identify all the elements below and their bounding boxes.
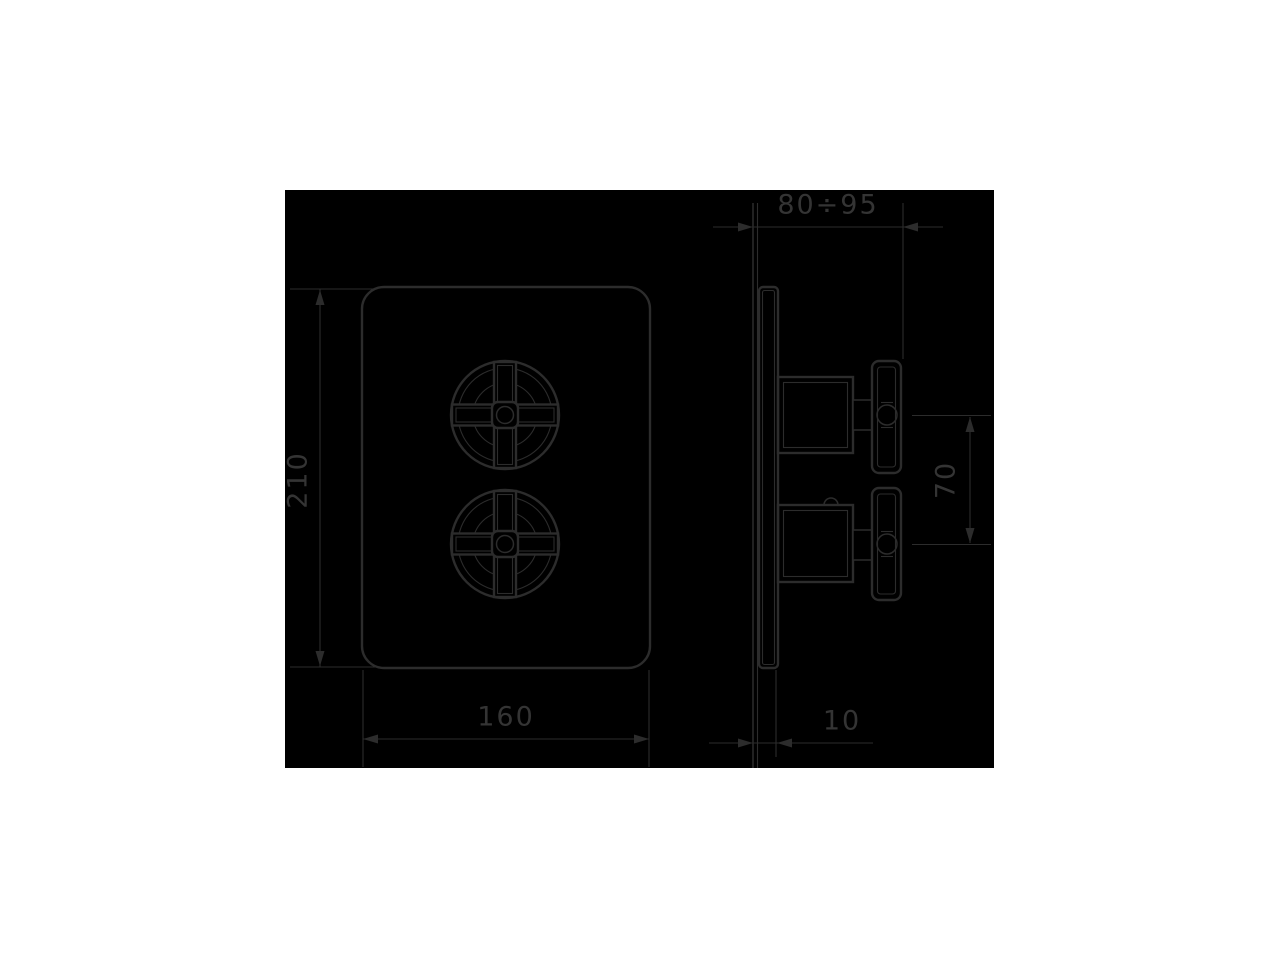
valve-upper-side bbox=[778, 361, 901, 473]
trim-plate-side-inner bbox=[763, 291, 775, 665]
arrowhead-left-icon bbox=[363, 735, 378, 744]
valve-lower-side bbox=[778, 488, 901, 600]
page: 210 160 80÷95 70 10 bbox=[0, 0, 1280, 960]
arrowhead-left-icon bbox=[777, 739, 792, 748]
knob-front-lower bbox=[451, 490, 559, 598]
dim-label-plate-thickness: 10 bbox=[823, 708, 861, 735]
arrowhead-up-icon bbox=[966, 417, 975, 432]
dim-label-handle-distance: 70 bbox=[933, 461, 960, 499]
trim-plate-front-outline bbox=[362, 287, 650, 668]
arrowhead-right-icon bbox=[738, 739, 753, 748]
knob-front-upper bbox=[451, 361, 559, 469]
side-view bbox=[753, 203, 901, 768]
trim-plate-side-outline bbox=[759, 287, 778, 668]
dimension-installation-depth bbox=[713, 203, 943, 359]
dim-label-plate-height: 210 bbox=[285, 451, 312, 509]
arrowhead-up-icon bbox=[316, 290, 325, 305]
dim-label-installation-depth: 80÷95 bbox=[777, 192, 878, 219]
front-view bbox=[362, 287, 650, 668]
arrowhead-right-icon bbox=[634, 735, 649, 744]
arrowhead-down-icon bbox=[316, 651, 325, 666]
arrowhead-right-icon bbox=[738, 223, 753, 232]
technical-drawing bbox=[285, 190, 994, 768]
arrowhead-left-icon bbox=[903, 223, 918, 232]
dim-label-plate-width: 160 bbox=[477, 704, 535, 731]
arrowhead-down-icon bbox=[966, 528, 975, 543]
drawing-canvas: 210 160 80÷95 70 10 bbox=[285, 190, 994, 768]
